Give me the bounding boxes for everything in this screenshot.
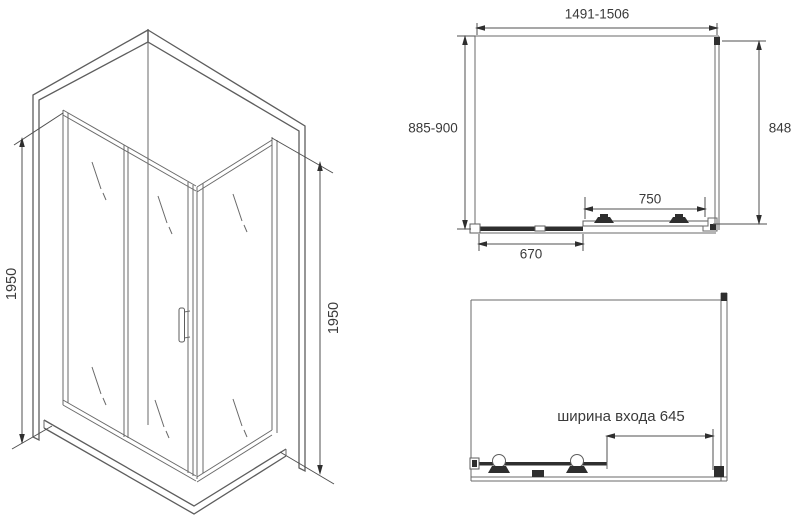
side-bottom-rail	[197, 430, 272, 482]
door-width-label: 750	[639, 192, 662, 207]
plan-bar-latch	[535, 226, 545, 231]
plan-roller-left	[594, 214, 614, 223]
dimension-height-right: 1950	[272, 138, 342, 484]
front-mullion	[124, 145, 128, 438]
front-bottom-profile	[471, 477, 727, 481]
dimension-plan-depth: 885-900	[408, 35, 475, 230]
plan-roller-right	[669, 214, 689, 223]
isometric-view: 1950 1950	[4, 30, 342, 514]
plan-right-profile-cap	[714, 37, 720, 45]
dimension-side-panel: 848	[713, 40, 791, 225]
corner-post	[193, 183, 203, 479]
front-top-rail	[63, 110, 196, 191]
left-wall-outline	[33, 30, 148, 440]
front-right-block	[714, 466, 724, 477]
plan-view: 1491-1506 885-900 848 750 67	[408, 7, 791, 262]
plan-outline	[475, 36, 719, 230]
technical-drawing-page: 1950 1950	[0, 0, 800, 516]
front-right-profile-cap	[721, 293, 727, 301]
plan-depth-label: 885-900	[408, 121, 458, 136]
dimension-fixed-panel: 670	[477, 234, 585, 262]
front-view: ширина входа 645	[470, 293, 727, 481]
front-right-wall-profile	[721, 293, 727, 481]
plan-left-end-cap	[470, 224, 480, 233]
front-left-cap-detail	[472, 460, 477, 467]
drawing-svg: 1950 1950	[0, 0, 800, 516]
glass-reflection-marks	[92, 162, 247, 438]
fixed-panel-label: 670	[520, 247, 543, 262]
front-center-latch	[532, 470, 544, 477]
front-left-frame	[63, 110, 68, 405]
side-panel-label: 848	[769, 121, 792, 136]
tray-ends	[44, 420, 286, 456]
right-wall-outline	[148, 30, 305, 471]
side-right-frame	[272, 137, 277, 433]
dimension-plan-width: 1491-1506	[475, 7, 719, 35]
height-right-label: 1950	[326, 302, 342, 334]
plan-width-label: 1491-1506	[565, 7, 630, 22]
entrance-width-label: ширина входа 645	[557, 408, 685, 425]
side-top-rail	[197, 140, 272, 192]
height-left-label: 1950	[4, 268, 20, 300]
front-outline	[471, 300, 721, 481]
plan-fixed-panel-bar	[478, 227, 583, 232]
